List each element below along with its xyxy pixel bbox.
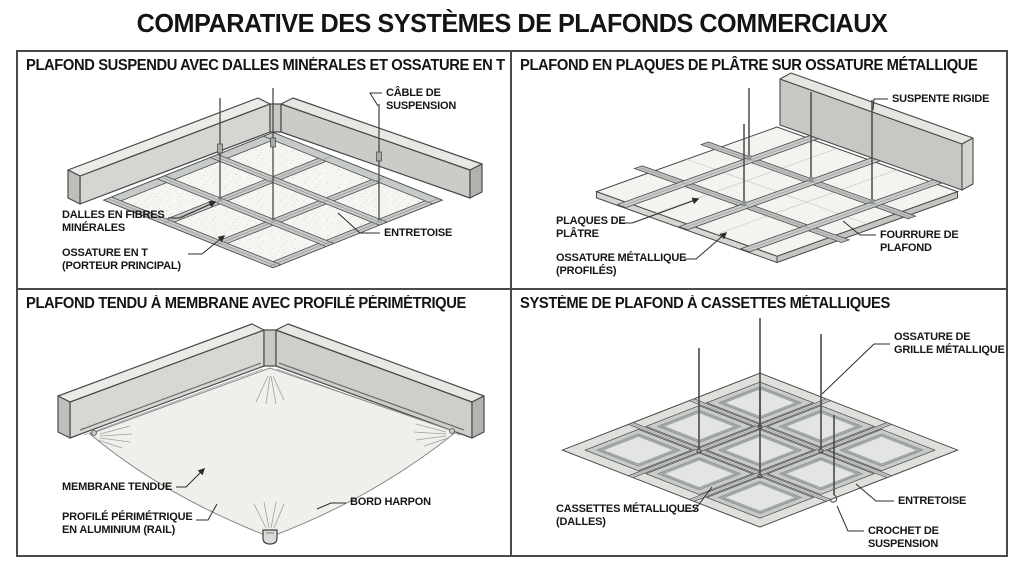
- panel-title: PLAFOND SUSPENDU AVEC DALLES MINÉRALES E…: [26, 57, 505, 75]
- panel-plaques-platre: PLAFOND EN PLAQUES DE PLÂTRE SUR OSSATUR…: [512, 52, 1006, 290]
- panel-membrane-tendue: PLAFOND TENDU À MEMBRANE AVEC PROFILÉ PÉ…: [18, 290, 512, 555]
- label-profile-perimetrique: PROFILÉ PÉRIMÉTRIQUE EN ALUMINIUM (RAIL): [62, 511, 202, 537]
- label-suspente-rigide: SUSPENTE RIGIDE: [892, 93, 989, 106]
- comparative-ceiling-systems-page: { "page": { "title": "COMPARATIVE DES SY…: [0, 0, 1024, 572]
- label-cassettes-metalliques: CASSETTES MÉTALLIQUES (DALLES): [556, 503, 704, 529]
- label-membrane-tendue: MEMBRANE TENDUE: [62, 481, 172, 494]
- label-crochet-suspension: CROCHET DE SUSPENSION: [868, 525, 1006, 551]
- panel-suspended-mineral-tiles: PLAFOND SUSPENDU AVEC DALLES MINÉRALES E…: [18, 52, 512, 290]
- label-fourrure-plafond: FOURRURE DE PLAFOND: [880, 229, 1006, 255]
- label-ossature-en-t: OSSATURE EN T (PORTEUR PRINCIPAL): [62, 247, 192, 273]
- label-entretoise: ENTRETOISE: [898, 495, 966, 508]
- label-ossature-grille: OSSATURE DE GRILLE MÉTALLIQUE: [894, 331, 1006, 357]
- label-plaques-de-platre: PLAQUES DE PLÂTRE: [556, 215, 636, 241]
- label-entretoise: ENTRETOISE: [384, 227, 452, 240]
- panel-cassettes-metalliques: SYSTÈME DE PLAFOND À CASSETTES MÉTALLIQU…: [512, 290, 1006, 555]
- label-ossature-metallique: OSSATURE MÉTALLIQUE (PROFILÉS): [556, 252, 690, 278]
- label-bord-harpon: BORD HARPON: [350, 496, 431, 509]
- page-title: COMPARATIVE DES SYSTÈMES DE PLAFONDS COM…: [15, 8, 1008, 39]
- comparison-grid: PLAFOND SUSPENDU AVEC DALLES MINÉRALES E…: [16, 50, 1008, 557]
- panel-title: PLAFOND EN PLAQUES DE PLÂTRE SUR OSSATUR…: [520, 57, 977, 75]
- panel-title: PLAFOND TENDU À MEMBRANE AVEC PROFILÉ PÉ…: [26, 295, 466, 313]
- label-dalles-fibres-minerales: DALLES EN FIBRES MINÉRALES: [62, 209, 174, 235]
- label-cable-suspension: CÂBLE DE SUSPENSION: [386, 87, 510, 113]
- panel-title: SYSTÈME DE PLAFOND À CASSETTES MÉTALLIQU…: [520, 295, 890, 313]
